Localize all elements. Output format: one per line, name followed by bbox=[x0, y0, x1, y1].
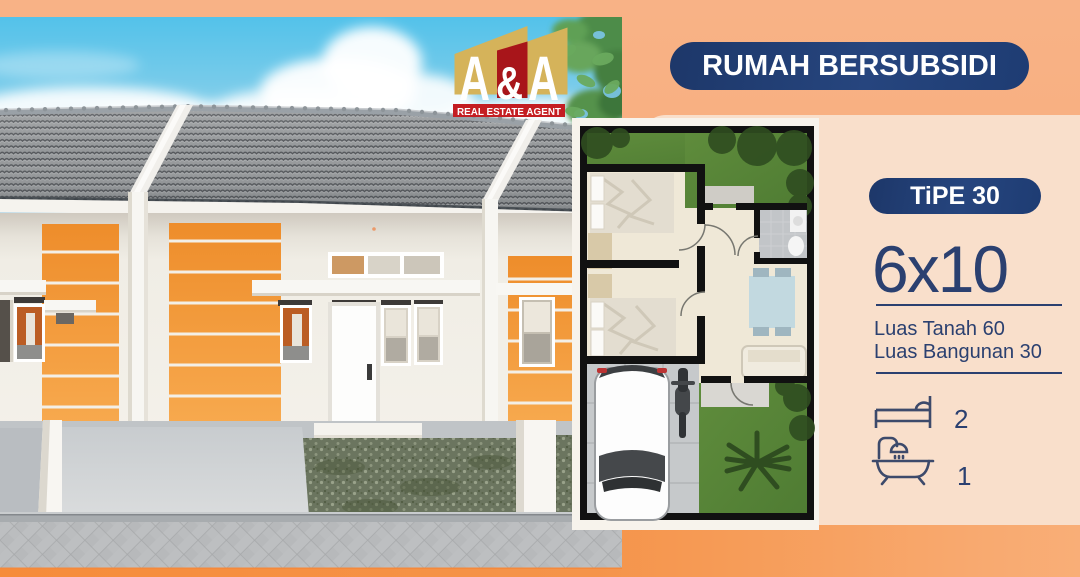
svg-text:A: A bbox=[528, 44, 559, 114]
svg-text:A: A bbox=[459, 44, 490, 114]
svg-text:REAL ESTATE AGENT: REAL ESTATE AGENT bbox=[457, 106, 562, 118]
svg-text:&: & bbox=[496, 57, 523, 109]
